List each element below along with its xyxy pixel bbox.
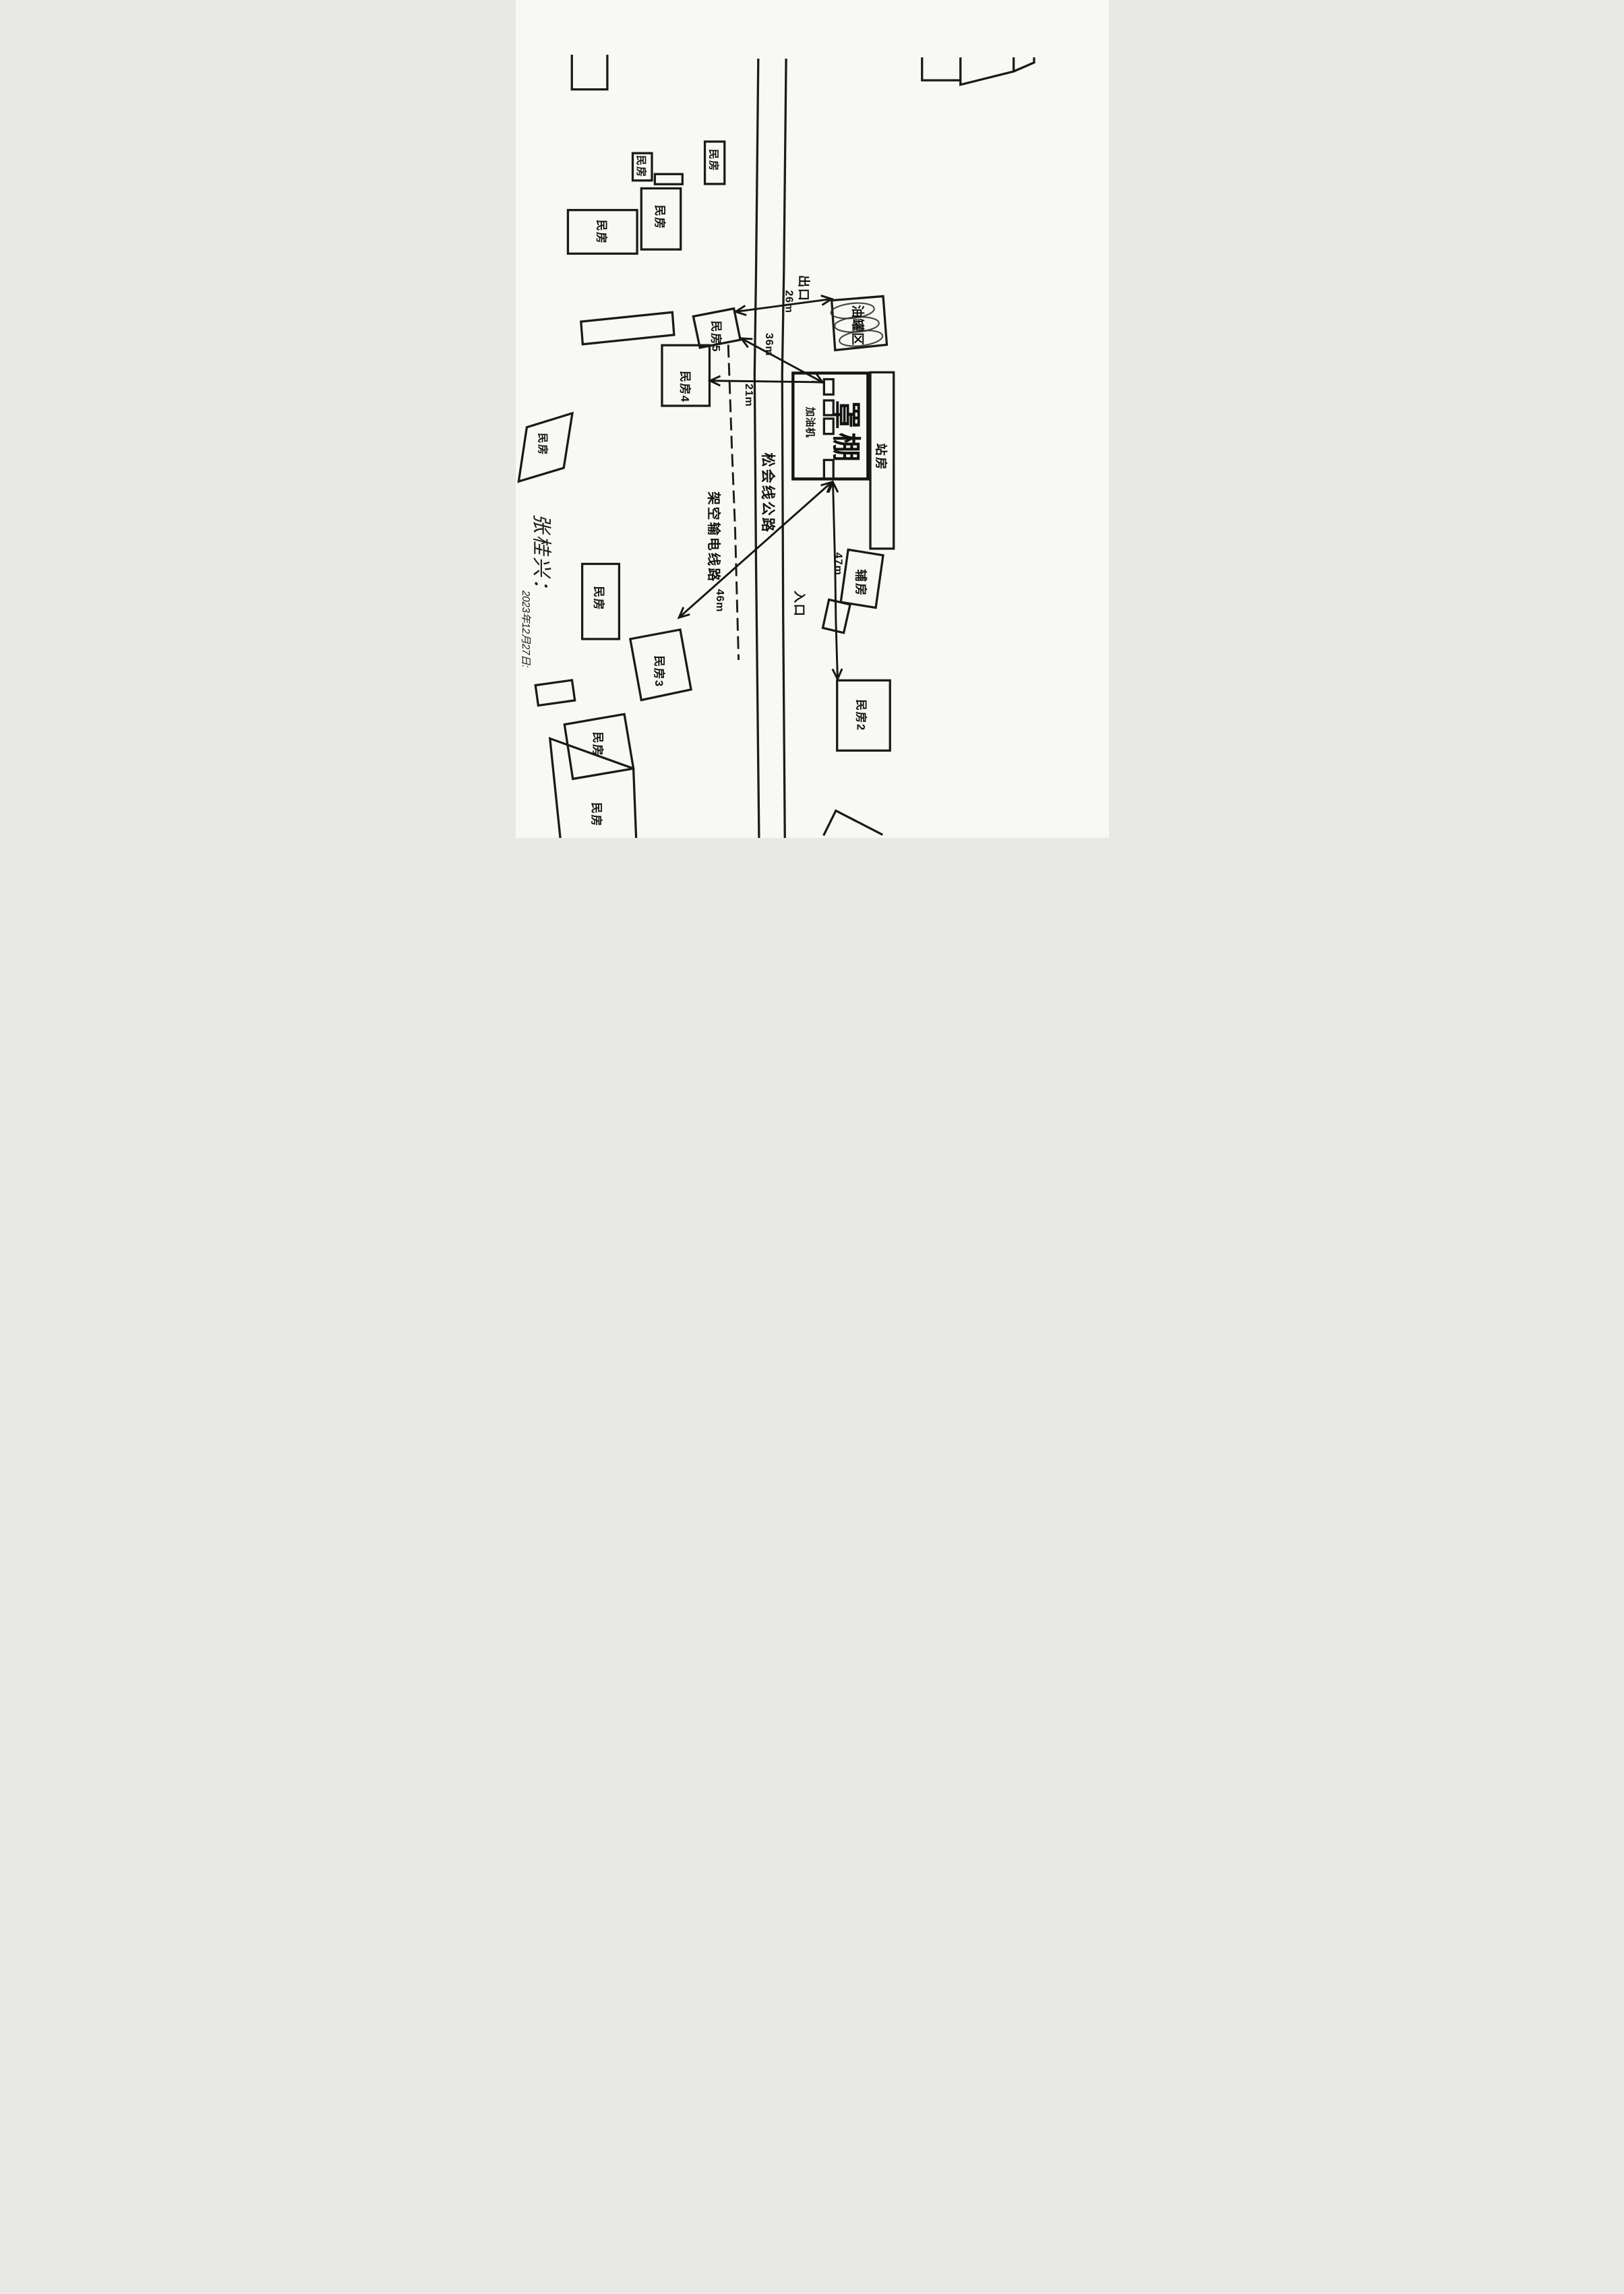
building-partial-bottomright [823, 811, 882, 836]
scanned-site-plan: 民房 民房 民房 民房 民房 民房5 民房4 民房3 民房2 民房 民房 民房 … [516, 0, 1109, 838]
exit-label: 出口 [796, 275, 810, 301]
handwritten-date: 2023年12月27日: [520, 590, 531, 667]
house-label-big-left: 民房 [595, 220, 608, 245]
house2-label: 民房2 [854, 699, 868, 731]
distance-36m-label: 36m [763, 333, 775, 356]
canopy-label: 罩棚 [829, 400, 861, 465]
tank-area-label: 油罐区 [850, 305, 866, 346]
distance-46m-label: 46m [714, 589, 726, 612]
building-blank-small [655, 174, 682, 184]
site-plan-svg: 民房 民房 民房 民房 民房 民房5 民房4 民房3 民房2 民房 民房 民房 … [516, 0, 1109, 838]
highway-left-edge [754, 59, 759, 838]
house-label-bottom-1: 民房 [591, 732, 605, 757]
distance-26m-label: 26m [783, 290, 795, 313]
dispenser-label: 加油机 [804, 406, 816, 437]
building-partial-topright-3 [1013, 57, 1033, 71]
distance-47m-label: 47m [832, 552, 844, 575]
highway-right-edge [782, 59, 786, 838]
building-thin-tilted [580, 312, 673, 344]
station-house-label: 站房 [874, 444, 888, 471]
house-label-tall-rect: 民房 [707, 149, 719, 172]
house5-label: 民房5 [709, 321, 723, 353]
house3-label: 民房3 [652, 655, 665, 687]
fuel-dispenser-1 [824, 380, 833, 395]
house-label-left-mid-bottom: 民房 [592, 586, 605, 611]
building-partial-topright-2 [960, 57, 1013, 85]
power-line-label: 架空输电线路 [706, 491, 721, 583]
auxiliary-label: 辅房 [853, 570, 868, 597]
house-label-tilted-square: 民房 [537, 433, 549, 456]
building-blank-bottomleft [535, 680, 574, 706]
highway-label: 松会线公路 [760, 452, 777, 533]
arrow-21m [710, 376, 822, 386]
overhead-power-line [728, 344, 738, 660]
house4-label: 民房4 [678, 371, 692, 402]
house-label-small-square: 民房 [635, 155, 647, 178]
handwritten-signature: 张桂兴： [530, 514, 551, 601]
arrow-47m [828, 482, 841, 679]
distance-21m-label: 21m [743, 384, 755, 406]
building-partial-topright-1 [922, 57, 960, 80]
entrance-label: 入口 [792, 591, 806, 617]
house-label-mid-rect: 民房 [653, 205, 667, 230]
house-label-bottom-2: 民房 [589, 802, 603, 827]
building-open-rect [572, 55, 607, 90]
